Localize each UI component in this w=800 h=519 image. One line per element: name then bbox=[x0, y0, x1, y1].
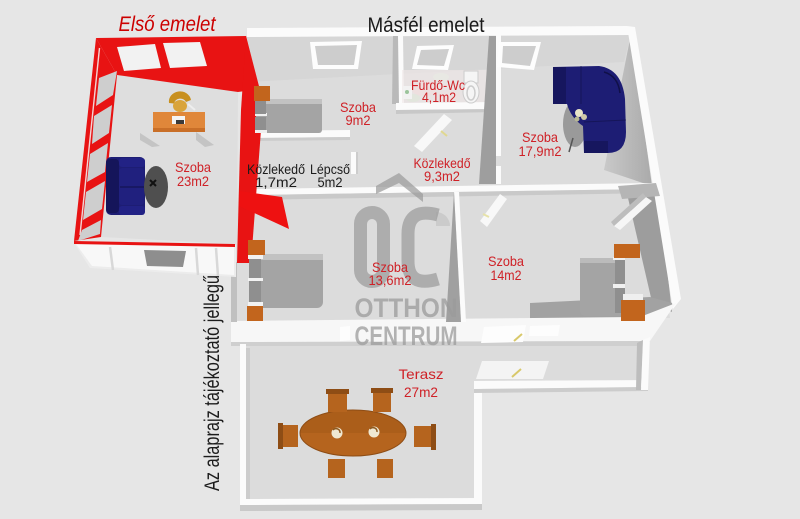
svg-text:Terasz: Terasz bbox=[399, 366, 444, 382]
svg-text:23m2: 23m2 bbox=[177, 173, 209, 189]
svg-text:Másfél emelet: Másfél emelet bbox=[368, 14, 485, 37]
svg-text:27m2: 27m2 bbox=[404, 384, 438, 400]
svg-text:Első emelet: Első emelet bbox=[119, 13, 217, 36]
svg-text:5m2: 5m2 bbox=[318, 174, 343, 190]
svg-text:Az alaprajz tájékoztató jelleg: Az alaprajz tájékoztató jellegű bbox=[201, 275, 224, 491]
svg-text:13,6m2: 13,6m2 bbox=[369, 272, 412, 288]
svg-text:CENTRUM: CENTRUM bbox=[355, 321, 458, 351]
svg-text:14m2: 14m2 bbox=[491, 267, 522, 283]
svg-text:9,3m2: 9,3m2 bbox=[424, 168, 460, 184]
svg-text:OTTHON: OTTHON bbox=[355, 293, 458, 323]
svg-text:17,9m2: 17,9m2 bbox=[519, 143, 562, 159]
svg-text:9m2: 9m2 bbox=[346, 112, 371, 128]
svg-text:4,1m2: 4,1m2 bbox=[422, 89, 456, 105]
svg-text:1,7m2: 1,7m2 bbox=[255, 174, 297, 190]
